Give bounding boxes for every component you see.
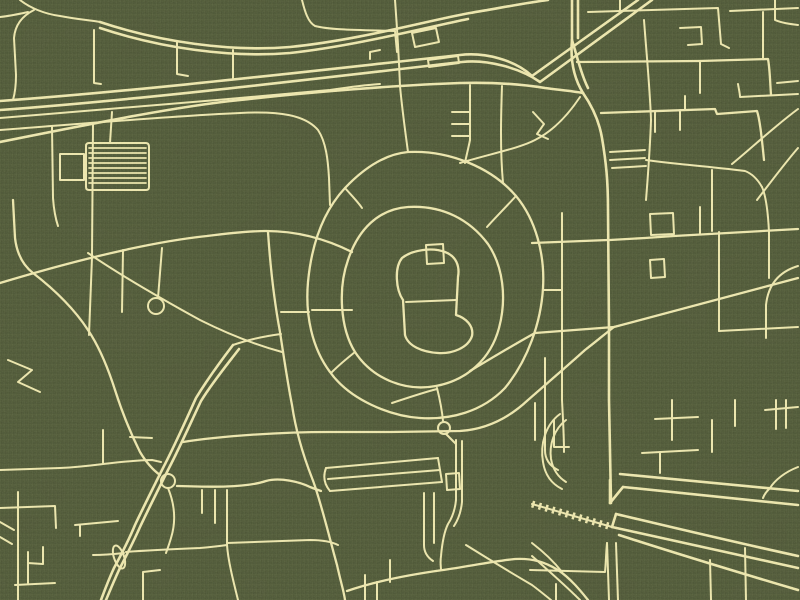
map-art-print: [0, 0, 800, 600]
canvas-grain: [0, 0, 800, 600]
city-map-canvas: [0, 0, 800, 600]
